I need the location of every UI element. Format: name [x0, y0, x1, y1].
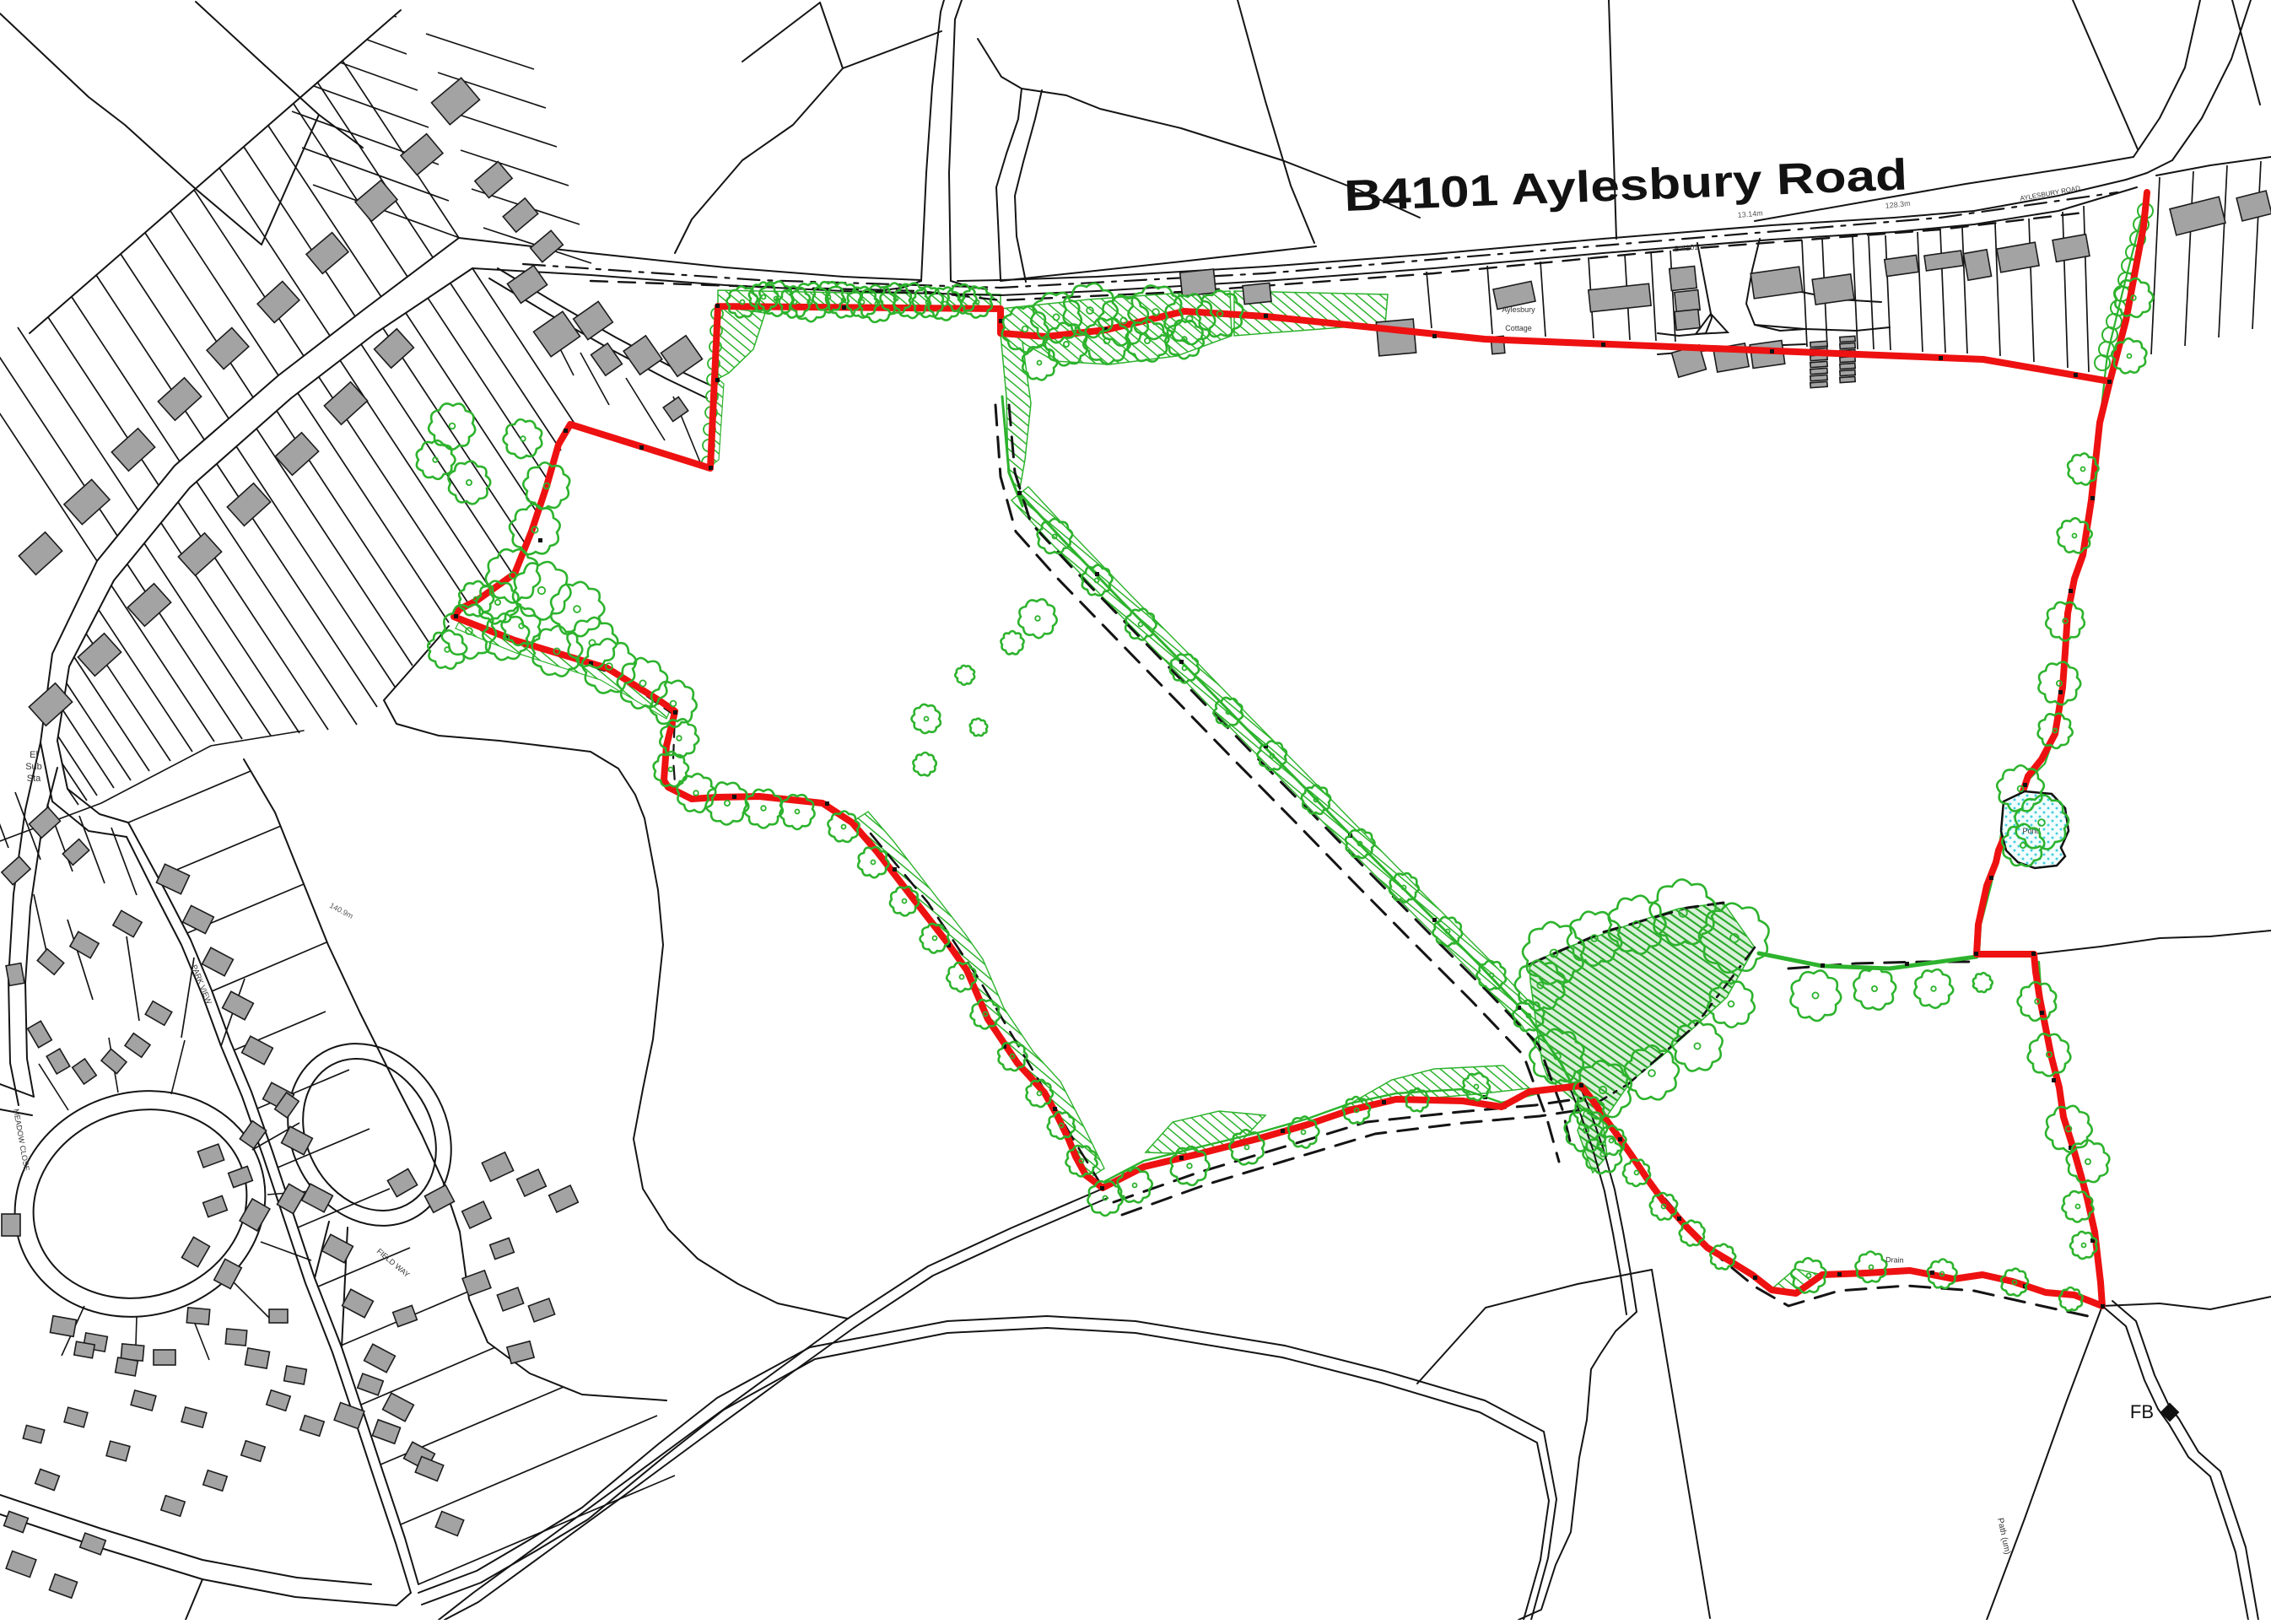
- svg-text:Cottage: Cottage: [1505, 324, 1532, 332]
- svg-text:Aylesbury: Aylesbury: [1502, 305, 1535, 314]
- svg-text:Sub: Sub: [25, 762, 42, 772]
- svg-text:Drain: Drain: [1885, 1255, 1904, 1265]
- svg-text:El: El: [30, 750, 38, 760]
- svg-text:Sta: Sta: [27, 774, 41, 784]
- svg-text:FB: FB: [2130, 1401, 2154, 1422]
